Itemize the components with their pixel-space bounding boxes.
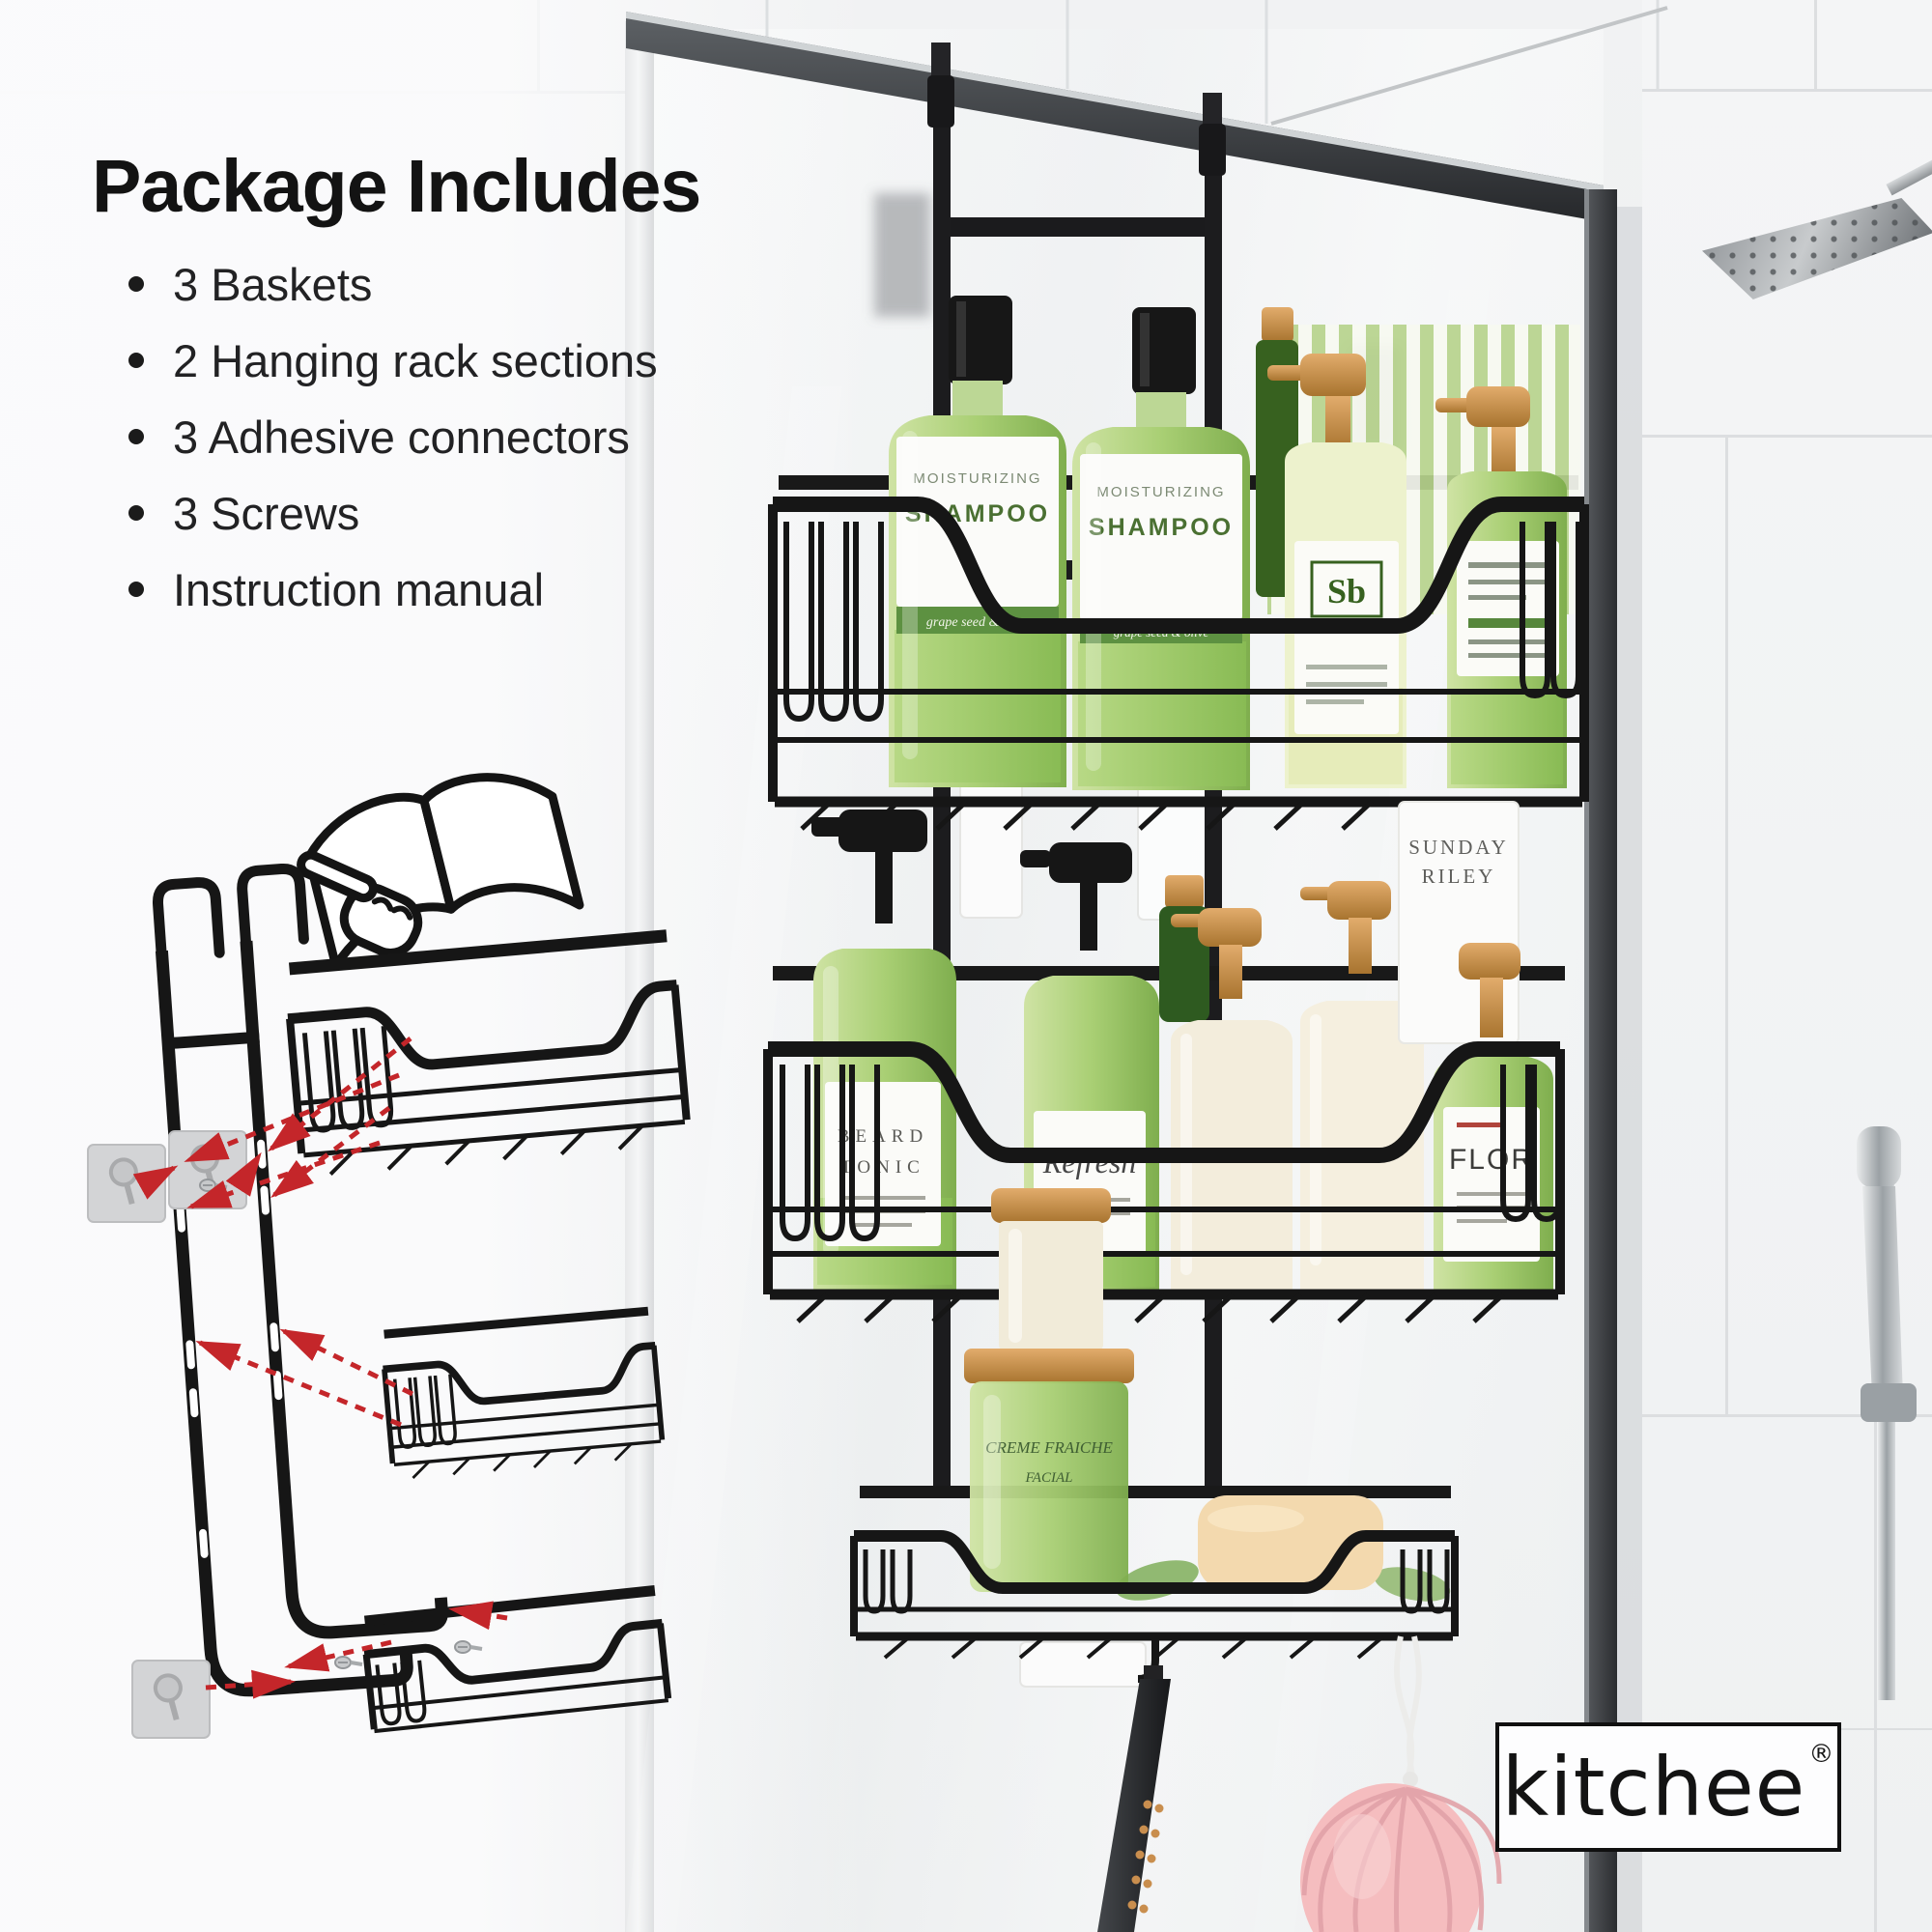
rack-rung <box>951 217 1205 237</box>
list-item: 3 Baskets <box>92 246 700 323</box>
list-item: 3 Adhesive connectors <box>92 399 700 475</box>
list-item: Instruction manual <box>92 552 700 628</box>
brand-logo-box: kitchee ® <box>1495 1722 1841 1852</box>
bottle-label-text: SUNDAY <box>1408 836 1509 859</box>
shampoo-bottle: MOISTURIZING SHAMPOO grape seed & olive <box>889 296 1066 787</box>
bottle-label-text: MOISTURIZING <box>913 470 1041 487</box>
bottle-label-text: Sb <box>1327 572 1366 611</box>
list-item-label: 3 Baskets <box>173 259 372 310</box>
diagram-basket <box>380 1306 665 1479</box>
jar-label-text: FACIAL <box>1025 1470 1073 1486</box>
diagram-basket <box>283 929 691 1177</box>
rack-rung <box>167 1032 260 1050</box>
assembly-diagram <box>53 749 739 1884</box>
screw <box>455 1641 482 1653</box>
loofah <box>1300 1636 1499 1932</box>
bottle-label-text: FLOR <box>1449 1144 1534 1176</box>
list-item-label: 3 Adhesive connectors <box>173 412 630 463</box>
package-includes-section: Package Includes 3 Baskets 2 Hanging rac… <box>92 143 700 628</box>
diagram-rack-rails <box>154 862 446 1693</box>
jar-label-text: CREME FRAICHE <box>985 1438 1113 1457</box>
shower-door-top-bar <box>626 12 1604 222</box>
adhesive-pad <box>132 1661 210 1738</box>
middle-basket: BEARD TONIC Refresh <box>768 802 1565 1321</box>
top-basket: MOISTURIZING SHAMPOO grape seed & olive … <box>773 296 1584 829</box>
bottle-label-text: RILEY <box>1422 865 1496 888</box>
list-item: 3 Screws <box>92 475 700 552</box>
razor <box>1097 1665 1171 1932</box>
cream-jar <box>991 1188 1111 1350</box>
package-list: 3 Baskets 2 Hanging rack sections 3 Adhe… <box>92 246 700 628</box>
shower-door-right-frame <box>1584 189 1642 1932</box>
list-item-label: Instruction manual <box>173 564 544 615</box>
adhesive-pad <box>88 1145 165 1222</box>
product-infographic: MOISTURIZING SHAMPOO grape seed & olive … <box>0 0 1932 1932</box>
rail-right <box>246 931 442 1635</box>
hand-shower-head <box>1857 1126 1901 1188</box>
bottle-label-text: MOISTURIZING <box>1096 484 1225 500</box>
page-title: Package Includes <box>92 143 700 231</box>
list-item: 2 Hanging rack sections <box>92 323 700 399</box>
green-jar: CREME FRAICHE FACIAL <box>964 1349 1134 1592</box>
small-dark-bottle <box>1159 875 1209 1022</box>
list-item-label: 2 Hanging rack sections <box>173 335 658 386</box>
hand-shower <box>1857 1126 1917 1700</box>
slide-bar-bracket <box>1861 1383 1917 1422</box>
registered-mark: ® <box>1808 1742 1834 1767</box>
glass-panel-edge-line <box>1271 8 1667 124</box>
shampoo-bottle: MOISTURIZING SHAMPOO grape seed & olive <box>1072 307 1250 790</box>
bottle-label-text: SHAMPOO <box>1089 514 1234 541</box>
leaf-accent <box>1372 1561 1454 1607</box>
screw <box>335 1657 362 1668</box>
list-item-label: 3 Screws <box>173 488 359 539</box>
instruction-manual-icon <box>281 760 580 966</box>
brand-logo: kitchee <box>1502 1747 1806 1828</box>
hand-shower-handle <box>1862 1186 1903 1397</box>
